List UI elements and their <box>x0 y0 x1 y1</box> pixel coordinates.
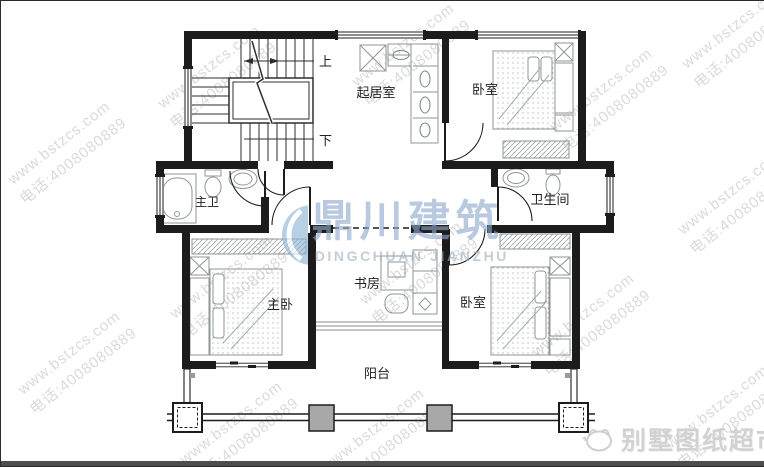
column-corner-left <box>173 403 202 432</box>
window-stair-left <box>183 66 193 129</box>
nightstand-strip-top-right <box>555 43 573 131</box>
room-label-living-room: 起居室 <box>356 85 395 100</box>
stair-down-label: 下 <box>319 133 332 148</box>
stairs <box>192 39 314 161</box>
wardrobe-top-right <box>503 141 569 158</box>
room-label-master-bedroom: 主卧 <box>267 297 293 312</box>
room-label-bathroom: 卫生间 <box>530 192 569 207</box>
nightstand-strip-master <box>190 257 209 355</box>
window-bedroom-top <box>475 30 581 40</box>
window-living-top <box>335 30 426 40</box>
study-desk <box>381 250 437 314</box>
window-master-bath <box>155 174 165 218</box>
room-label-study: 书房 <box>354 276 380 291</box>
floor-plan-page: www.bstzcs.com电话:4008080889 www.bstzcs.c… <box>0 0 764 467</box>
study-railing <box>316 322 442 330</box>
room-label-bedroom-top-right: 卧室 <box>472 82 498 97</box>
door-bedroom-bottom-right <box>449 229 485 265</box>
plant-table <box>360 45 386 71</box>
door-bedroom-top-right <box>445 123 483 161</box>
room-label-bedroom-bottom-right: 卧室 <box>460 295 486 310</box>
door-master-bedroom <box>272 187 310 225</box>
corner-brand-label: 别墅图纸超市 <box>621 421 764 457</box>
balcony-railing <box>167 414 595 421</box>
door-bathroom <box>498 187 532 221</box>
bed-top-right <box>493 51 555 129</box>
column-mid-right <box>427 405 452 431</box>
balcony-door-master <box>216 362 268 369</box>
floor-plan-drawing: 起居室 卧室 主卫 卫生间 书房 主卧 卧室 阳台 上 下 <box>1 1 764 466</box>
stair-up-label: 上 <box>319 54 332 69</box>
nightstand-strip-bottom-right <box>550 257 570 355</box>
window-bathroom <box>605 174 615 216</box>
wardrobe-bottom-right <box>500 234 570 249</box>
sink-bathroom <box>503 169 529 187</box>
door-living-hall <box>258 169 284 195</box>
bottom-bar <box>1 461 764 466</box>
balcony-door-bedroom <box>479 362 531 369</box>
toilet-master-bath <box>205 170 221 197</box>
corner-brand: 别墅图纸超市 <box>579 421 764 457</box>
room-label-balcony: 阳台 <box>364 366 390 381</box>
corner-logo-icon <box>579 423 617 455</box>
bed-master <box>210 269 282 355</box>
bed-bottom-right <box>491 267 549 355</box>
column-mid-left <box>309 405 334 431</box>
wardrobe-master <box>192 239 306 254</box>
room-label-master-bath: 主卫 <box>195 195 219 209</box>
